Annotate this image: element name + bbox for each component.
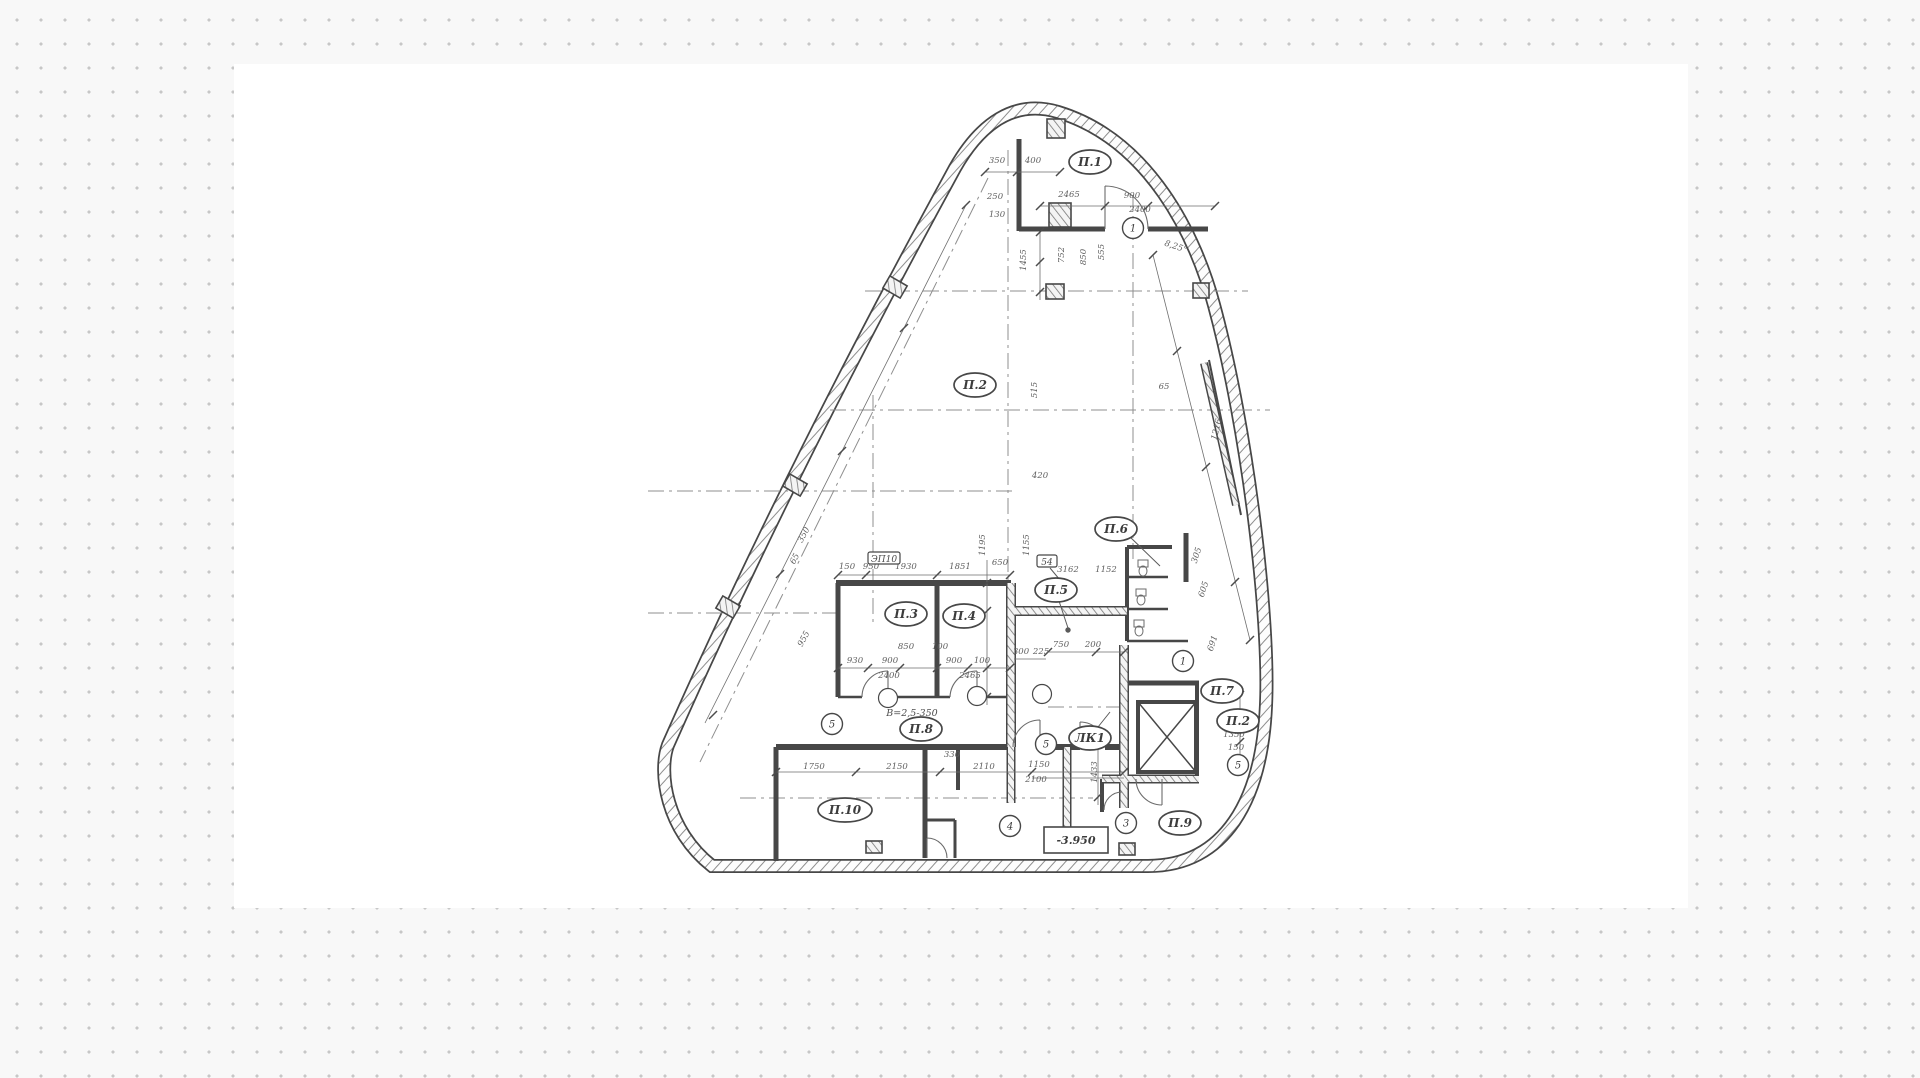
- dimension-text: 250: [986, 192, 1004, 202]
- dimension-text: 2400: [1128, 205, 1151, 215]
- dimension-text: 330: [944, 750, 961, 760]
- dimension-text: 691: [1206, 634, 1221, 653]
- dimension-text: 650: [992, 558, 1009, 568]
- equipment-tag-text: ЭП10: [871, 555, 897, 565]
- dimension-text: 1195: [978, 534, 988, 556]
- dimension-text: 130: [989, 210, 1006, 220]
- dimension-texts: 3504002501302465900240014557528505558,25…: [788, 156, 1245, 785]
- dimension-text: 955: [796, 630, 812, 649]
- dimension-text: 2400: [877, 671, 900, 681]
- elevation-mark: -3.950: [1044, 827, 1108, 853]
- dimension-text: 900: [1124, 191, 1141, 201]
- dimension-text: 420: [1031, 471, 1049, 481]
- dimension-text: 225: [1032, 647, 1049, 657]
- dimension-text: 900: [882, 656, 899, 666]
- room-label: П.4: [951, 609, 976, 623]
- dimension-text: 350: [989, 156, 1006, 166]
- dimension-text: 1152: [1095, 565, 1117, 575]
- room-label: П.2: [962, 378, 987, 392]
- dimension-text: 400: [1024, 156, 1042, 166]
- dimension-text: 605: [1197, 580, 1212, 599]
- dimension-text: 515: [1030, 382, 1040, 398]
- dimension-text: 2150: [885, 762, 908, 772]
- dimension-text: 150: [839, 562, 856, 572]
- dimension-text: 2465: [1057, 190, 1080, 200]
- dimension-text: 305: [1190, 546, 1205, 565]
- hatched-walls: [1011, 363, 1236, 842]
- axis-marker-circle: [879, 689, 898, 708]
- grid-bubble-number: 4: [1006, 822, 1013, 833]
- dimension-text: 150: [1228, 743, 1245, 753]
- grid-bubble-number: 1: [1180, 657, 1186, 668]
- dimension-text: 1150: [1028, 760, 1050, 770]
- dimension-text: 3162: [1057, 565, 1079, 575]
- room-label: П.1: [1077, 155, 1102, 169]
- room-label: П.6: [1103, 522, 1129, 536]
- dimension-text: 1455: [1019, 249, 1029, 271]
- room-label: П.5: [1043, 583, 1068, 597]
- room-label: П.3: [893, 607, 918, 621]
- design-canvas-page: { "canvas": { "background": "#ffffff", "…: [0, 0, 1920, 1078]
- dimension-text: 350: [796, 525, 813, 545]
- room-label: ЛК1: [1074, 731, 1105, 745]
- grid-bubble-number: 1: [1130, 224, 1136, 235]
- dimension-text: 1750: [803, 762, 825, 772]
- grid-bubble-number: 5: [1043, 740, 1049, 751]
- room-label: П.7: [1209, 684, 1235, 698]
- dimension-text: 1433: [1090, 761, 1100, 783]
- grid-bubble-number: 5: [1235, 761, 1241, 772]
- equipment-tag-text: 54: [1041, 558, 1053, 568]
- dimension-text: 555: [1097, 244, 1107, 260]
- dimension-text: 750: [1053, 640, 1070, 650]
- outer-wall: [664, 109, 1266, 866]
- dimension-text: 850: [898, 642, 915, 652]
- dimension-text: 850: [1079, 248, 1089, 265]
- dimension-text: 752: [1057, 247, 1067, 263]
- dimension-text: 200: [1084, 640, 1102, 650]
- dimension-text: 900: [946, 656, 963, 666]
- dimension-text: 2110: [972, 762, 995, 772]
- dimension-text: 2465: [958, 671, 981, 681]
- floor-plan-drawing: -3.950 В=2,5-350 35040025013024659002400…: [234, 64, 1688, 908]
- room-label: П.8: [908, 722, 934, 736]
- drawing-canvas[interactable]: -3.950 В=2,5-350 35040025013024659002400…: [234, 64, 1688, 908]
- dimension-text: 300: [1013, 647, 1030, 657]
- grid-bubble-number: 5: [829, 720, 835, 731]
- sanitary-fixtures: [1134, 560, 1148, 636]
- dimension-text: 930: [847, 656, 864, 666]
- axis-marker-circle: [968, 687, 987, 706]
- axis-marker-circle: [1033, 685, 1052, 704]
- grid-bubble-number: 3: [1123, 819, 1129, 830]
- elevation-value: -3.950: [1056, 834, 1095, 847]
- dimension-text: 2100: [1024, 775, 1047, 785]
- dimension-text: 1851: [949, 562, 971, 572]
- room-label: П.9: [1167, 816, 1193, 830]
- dimension-text: 100: [974, 656, 991, 666]
- room-label: П.10: [828, 803, 862, 817]
- dimension-text: 1155: [1022, 534, 1032, 556]
- dimension-text: 65: [1159, 382, 1170, 392]
- dimension-text: 100: [932, 642, 949, 652]
- room-label: П.2: [1225, 714, 1250, 728]
